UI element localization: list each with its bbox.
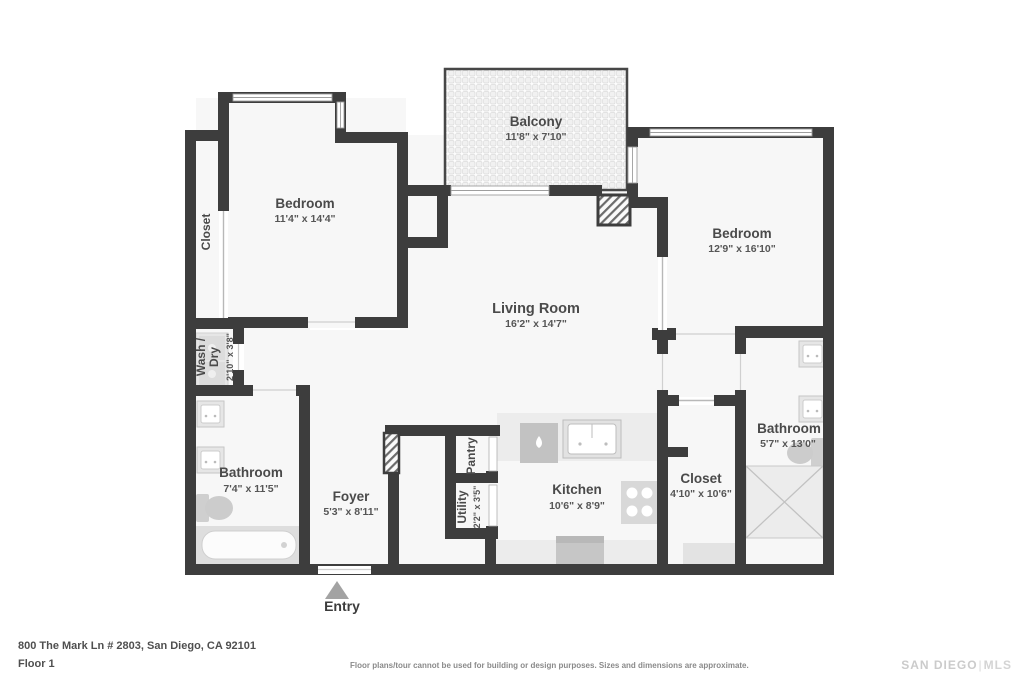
floor-number-text: Floor 1 (18, 658, 55, 670)
address-text: 800 The Mark Ln # 2803, San Diego, CA 92… (18, 640, 256, 652)
column-hatch (384, 433, 399, 473)
vanity-sink (799, 341, 826, 367)
window (233, 94, 332, 101)
window (628, 147, 637, 183)
balcony-sliding-door (451, 186, 549, 195)
living-room-label: Living Room (492, 301, 580, 317)
door-opening (253, 385, 296, 396)
entry-label: Entry (324, 598, 360, 614)
door-opening (676, 328, 735, 340)
utility-label: Utility (455, 490, 469, 524)
door-opening (735, 354, 746, 390)
mls-logo: SAN DIEGO|MLS (901, 658, 1012, 672)
closet-left-label: Closet (199, 214, 213, 251)
foyer-label: Foyer (333, 489, 371, 504)
balcony-deck (445, 69, 627, 190)
door-opening (657, 354, 668, 390)
mls-logo-right: MLS (984, 658, 1012, 672)
shower (746, 466, 823, 538)
bathroom-right-label: Bathroom (757, 421, 821, 436)
foyer-dims: 5'3" x 8'11" (323, 506, 378, 518)
bedroom-left-label: Bedroom (275, 196, 334, 211)
bathroom-left-dims: 7'4" x 11'5" (223, 483, 278, 495)
island-edge (556, 536, 604, 543)
balcony-label: Balcony (510, 114, 563, 129)
kitchen-label: Kitchen (552, 482, 602, 497)
closet-shelf (683, 543, 735, 564)
utility-dims: 2'2" x 3'5" (472, 486, 482, 529)
window (337, 102, 344, 128)
floor-plan-page: Balcony 11'8" x 7'10" Bedroom 11'4" x 14… (0, 0, 1024, 683)
closet-sliding-door (219, 211, 228, 318)
bathroom-right-dims: 5'7" x 13'0" (760, 438, 816, 450)
washdry-label-1: Wash / (194, 337, 208, 376)
mls-logo-left: SAN DIEGO (901, 658, 977, 672)
bedroom-right-dims: 12'9" x 16'10" (708, 243, 776, 255)
kitchen-dims: 10'6" x 8'9" (549, 500, 605, 512)
bedroom-left-dims: 11'4" x 14'4" (274, 213, 335, 225)
door-opening (308, 317, 355, 328)
closet-door (679, 397, 714, 405)
window (650, 129, 812, 136)
glass-door (658, 257, 667, 330)
living-room-dims: 16'2" x 14'7" (505, 318, 567, 330)
closet-right-label: Closet (680, 471, 722, 486)
column-hatch (598, 195, 630, 225)
washdry-dims: 2'10" x 3'8" (225, 333, 235, 381)
floor-plan: Balcony 11'8" x 7'10" Bedroom 11'4" x 14… (0, 0, 1024, 683)
bathroom-left-label: Bathroom (219, 465, 283, 480)
kitchen-sink (563, 420, 621, 458)
vanity-sink (197, 401, 224, 427)
disclaimer-text: Floor plans/tour cannot be used for buil… (350, 661, 749, 670)
closet-right-dims: 4'10" x 10'6" (670, 488, 732, 500)
bedroom-right-label: Bedroom (712, 226, 771, 241)
bathtub (196, 526, 302, 564)
stove (621, 481, 657, 524)
pantry-label: Pantry (464, 437, 478, 475)
vanity-sink (799, 396, 826, 422)
entry-arrow-icon (325, 581, 349, 599)
washdry-label-2: Dry (207, 347, 221, 367)
entry-opening (318, 566, 371, 574)
balcony-dims: 11'8" x 7'10" (505, 131, 566, 143)
